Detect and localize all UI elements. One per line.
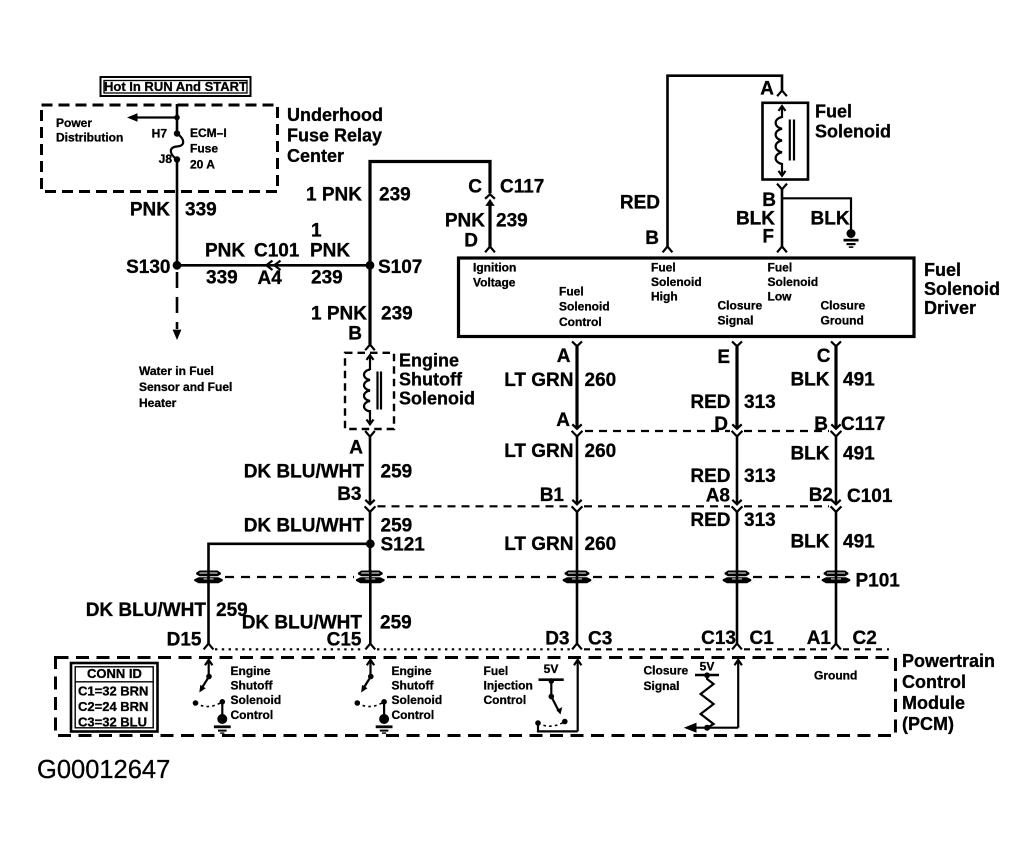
svg-text:C2: C2 [853,628,877,649]
svg-text:Hot In RUN And START: Hot In RUN And START [104,79,247,94]
svg-text:A: A [760,79,774,100]
svg-text:B1: B1 [540,485,565,506]
svg-text:A: A [557,346,571,367]
svg-text:239: 239 [496,211,528,232]
svg-text:C101: C101 [254,241,300,262]
svg-text:339: 339 [185,200,217,221]
svg-text:LT GRN: LT GRN [504,441,573,462]
svg-text:BLK: BLK [790,370,829,391]
svg-text:313: 313 [744,392,776,413]
svg-text:G00012647: G00012647 [37,756,170,784]
svg-text:PNK: PNK [445,211,485,232]
svg-text:239: 239 [379,185,411,206]
svg-text:B: B [645,228,659,249]
svg-text:A4: A4 [258,268,283,289]
svg-text:RED: RED [620,193,660,214]
svg-text:PNK: PNK [310,241,350,262]
svg-text:260: 260 [585,370,617,391]
svg-text:DK BLU/WHT: DK BLU/WHT [244,516,365,537]
svg-text:C: C [468,177,482,198]
svg-text:LT GRN: LT GRN [504,370,573,391]
svg-text:491: 491 [843,370,875,391]
svg-text:A8: A8 [706,486,730,507]
svg-text:S121: S121 [381,535,426,556]
svg-text:339: 339 [206,268,238,289]
svg-text:1 PNK: 1 PNK [311,304,367,325]
svg-text:B3: B3 [337,484,361,505]
svg-text:RED: RED [690,466,730,487]
svg-text:ClosureGround: ClosureGround [821,299,866,328]
svg-text:S130: S130 [126,257,170,278]
svg-text:C1=32 BRN: C1=32 BRN [78,684,148,699]
svg-text:E: E [717,347,730,368]
svg-text:C3: C3 [588,629,612,650]
svg-text:IgnitionVoltage: IgnitionVoltage [473,261,516,290]
svg-text:A: A [349,438,363,459]
svg-text:1: 1 [311,221,322,242]
svg-text:A1: A1 [807,628,832,649]
svg-text:C101: C101 [847,486,893,507]
svg-text:C: C [817,346,831,367]
svg-text:F: F [762,227,774,248]
svg-text:1 PNK: 1 PNK [306,185,362,206]
svg-text:239: 239 [381,304,413,325]
svg-text:RED: RED [690,510,730,531]
svg-text:Ground: Ground [814,669,857,683]
svg-text:BLK: BLK [811,209,850,230]
svg-text:LT GRN: LT GRN [504,534,573,555]
svg-text:H7: H7 [152,127,168,141]
svg-text:C1: C1 [750,628,775,649]
svg-text:C2=24 BRN: C2=24 BRN [78,699,148,714]
svg-text:239: 239 [311,268,343,289]
svg-text:S107: S107 [378,257,422,278]
svg-text:259: 259 [381,462,413,483]
svg-text:C117: C117 [500,177,544,198]
svg-text:5V: 5V [544,662,559,676]
svg-text:BLK: BLK [790,532,829,553]
svg-text:A: A [556,410,570,431]
svg-text:313: 313 [744,510,776,531]
svg-text:C117: C117 [841,414,885,435]
svg-text:491: 491 [843,444,875,465]
svg-text:313: 313 [744,466,776,487]
svg-text:D: D [464,231,478,252]
svg-text:5V: 5V [700,660,715,674]
svg-text:DK BLU/WHT: DK BLU/WHT [86,600,207,621]
svg-text:PNK: PNK [205,241,245,262]
svg-text:C3=32 BLU: C3=32 BLU [78,715,147,730]
svg-text:B: B [348,324,362,345]
svg-text:260: 260 [585,441,617,462]
svg-text:260: 260 [585,534,617,555]
svg-text:BLK: BLK [790,444,829,465]
svg-text:DK BLU/WHT: DK BLU/WHT [244,462,365,483]
svg-text:C15: C15 [327,630,362,651]
svg-text:C13: C13 [701,628,736,649]
svg-text:D15: D15 [167,630,202,651]
svg-text:B2: B2 [809,485,833,506]
svg-text:D3: D3 [545,629,569,650]
svg-text:J8: J8 [159,152,173,166]
svg-text:P101: P101 [856,571,901,592]
svg-text:491: 491 [843,532,875,553]
svg-text:259: 259 [381,516,413,537]
svg-text:CONN ID: CONN ID [87,666,142,681]
svg-text:RED: RED [690,392,730,413]
svg-text:259: 259 [380,613,412,634]
svg-text:PNK: PNK [130,200,170,221]
